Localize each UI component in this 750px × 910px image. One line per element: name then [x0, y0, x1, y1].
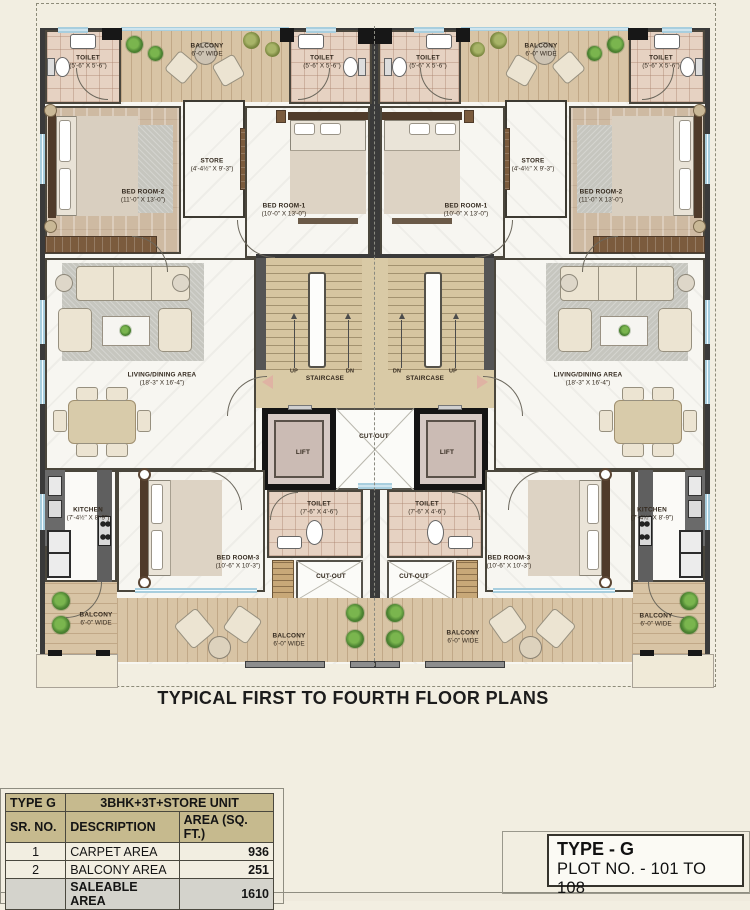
floor-plan-page: { "page": {"bg": "#f2eee1", "accent_tan"… [0, 0, 750, 900]
label-toilet-top-left: TOILET(5'-6" X 5'-6") [69, 54, 107, 69]
label-bedroom3-right: BED ROOM-3(10'-6" X 10'-3") [487, 554, 532, 569]
label-lift-right: LIFT [440, 449, 454, 457]
room-labels-layer: TOILET(5'-6" X 5'-6")BALCONY6'-0" WIDETO… [0, 0, 750, 900]
label-toilet-top-center-left: TOILET(5'-6" X 5'-6") [303, 54, 341, 69]
label-kitchen-left: KITCHEN(7'-4½" X 8'-9") [67, 506, 110, 521]
label-dn-left: DN [346, 369, 354, 376]
label-dn-right: DN [393, 369, 401, 376]
label-toilet-bottom-right: TOILET(7'-6" X 4'-6") [408, 500, 446, 515]
label-balcony-bottom-left: BALCONY6'-0" WIDE [273, 632, 306, 647]
label-up-right: UP [449, 369, 457, 376]
label-balcony-top-left: BALCONY6'-0" WIDE [191, 42, 224, 57]
label-bedroom2-left: BED ROOM-2(11'-0" X 13'-0") [121, 188, 165, 203]
label-living-dining-left: LIVING/DINING AREA(18'-3" X 16'-4") [128, 371, 197, 386]
label-bedroom1-right: BED ROOM-1(10'-0" X 13'-0") [444, 202, 489, 217]
label-staircase-right: STAIRCASE [406, 375, 444, 383]
label-cutout-middle: CUT-OUT [359, 433, 389, 441]
label-balcony-top-right: BALCONY6'-0" WIDE [525, 42, 558, 57]
label-living-dining-right: LIVING/DINING AREA(18'-3" X 16'-4") [554, 371, 623, 386]
label-balcony-left-side: BALCONY6'-0" WIDE [80, 611, 113, 626]
label-cutout-bottom-left: CUT-OUT [316, 573, 346, 581]
label-staircase-left: STAIRCASE [306, 375, 344, 383]
label-lift-left: LIFT [296, 449, 310, 457]
label-cutout-bottom-right: CUT-OUT [399, 573, 429, 581]
label-up-left: UP [290, 369, 298, 376]
label-store-left: STORE(4'-4½" X 9'-3") [191, 157, 234, 172]
label-bedroom1-left: BED ROOM-1(10'-0" X 13'-0") [262, 202, 307, 217]
label-toilet-top-right: TOILET(5'-6" X 5'-6") [642, 54, 680, 69]
label-store-right: STORE(4'-4½" X 9'-3") [512, 157, 555, 172]
label-balcony-right-side: BALCONY6'-0" WIDE [640, 612, 673, 627]
label-kitchen-right: KITCHEN(7'-4½" X 8'-9") [631, 506, 674, 521]
label-toilet-bottom-left: TOILET(7'-6" X 4'-6") [300, 500, 338, 515]
label-balcony-bottom-right: BALCONY6'-0" WIDE [447, 629, 480, 644]
label-bedroom2-right: BED ROOM-2(11'-0" X 13'-0") [579, 188, 623, 203]
label-bedroom3-left: BED ROOM-3(10'-6" X 10'-3") [216, 554, 261, 569]
label-toilet-top-center-right: TOILET(5'-6" X 5'-6") [409, 54, 447, 69]
